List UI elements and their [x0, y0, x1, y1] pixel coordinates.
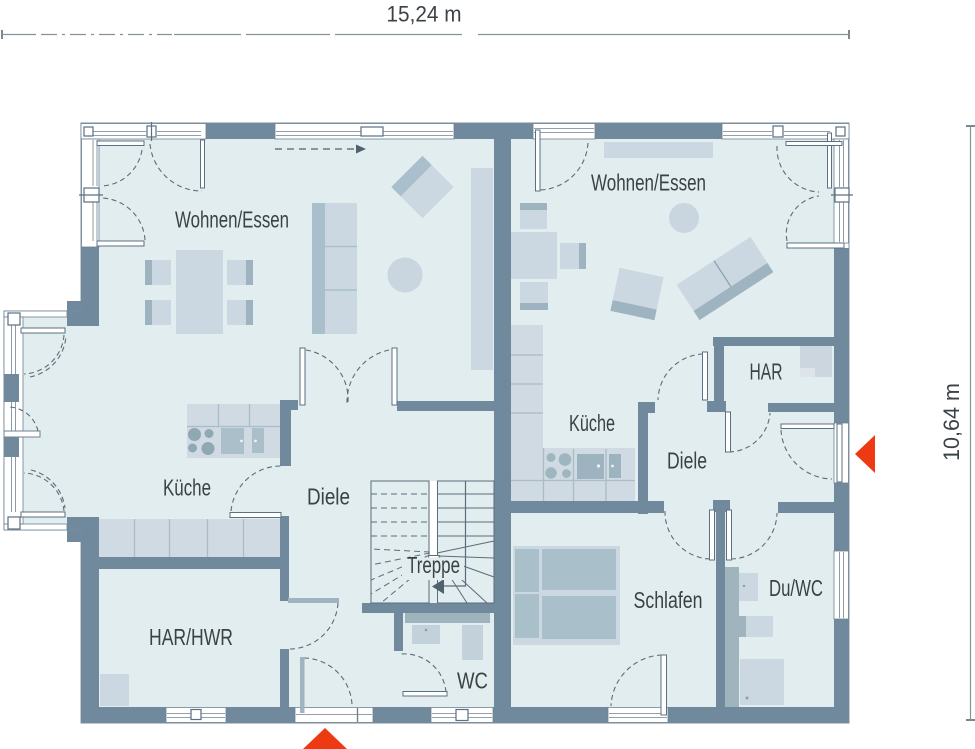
svg-text:Du/WC: Du/WC	[769, 575, 823, 601]
svg-text:Diele: Diele	[667, 448, 707, 474]
svg-text:Schlafen: Schlafen	[634, 587, 703, 613]
svg-text:15,24 m: 15,24 m	[387, 2, 462, 27]
svg-text:Treppe: Treppe	[407, 552, 460, 578]
svg-text:Diele: Diele	[307, 484, 350, 510]
svg-text:Küche: Küche	[569, 410, 615, 436]
svg-text:Wohnen/Essen: Wohnen/Essen	[591, 170, 706, 196]
svg-text:WC: WC	[457, 668, 488, 694]
svg-text:HAR/HWR: HAR/HWR	[149, 624, 233, 650]
svg-text:10,64 m: 10,64 m	[939, 383, 964, 461]
svg-text:Wohnen/Essen: Wohnen/Essen	[175, 207, 289, 233]
svg-text:HAR: HAR	[750, 359, 783, 385]
svg-text:Küche: Küche	[163, 475, 211, 501]
